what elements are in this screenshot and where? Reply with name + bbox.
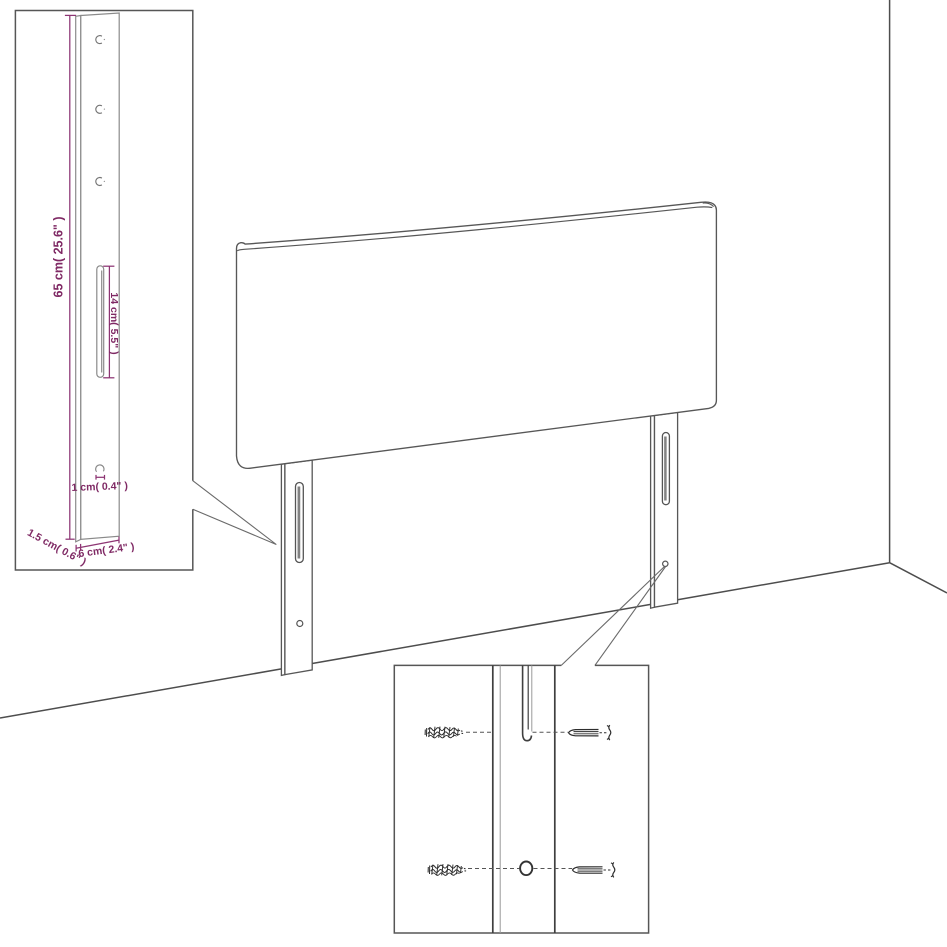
svg-text:65 cm( 25.6" ): 65 cm( 25.6" ) [52,217,66,298]
svg-text:14 cm( 5.5" ): 14 cm( 5.5" ) [108,292,120,354]
svg-text:1 cm( 0.4" ): 1 cm( 0.4" ) [71,480,128,494]
